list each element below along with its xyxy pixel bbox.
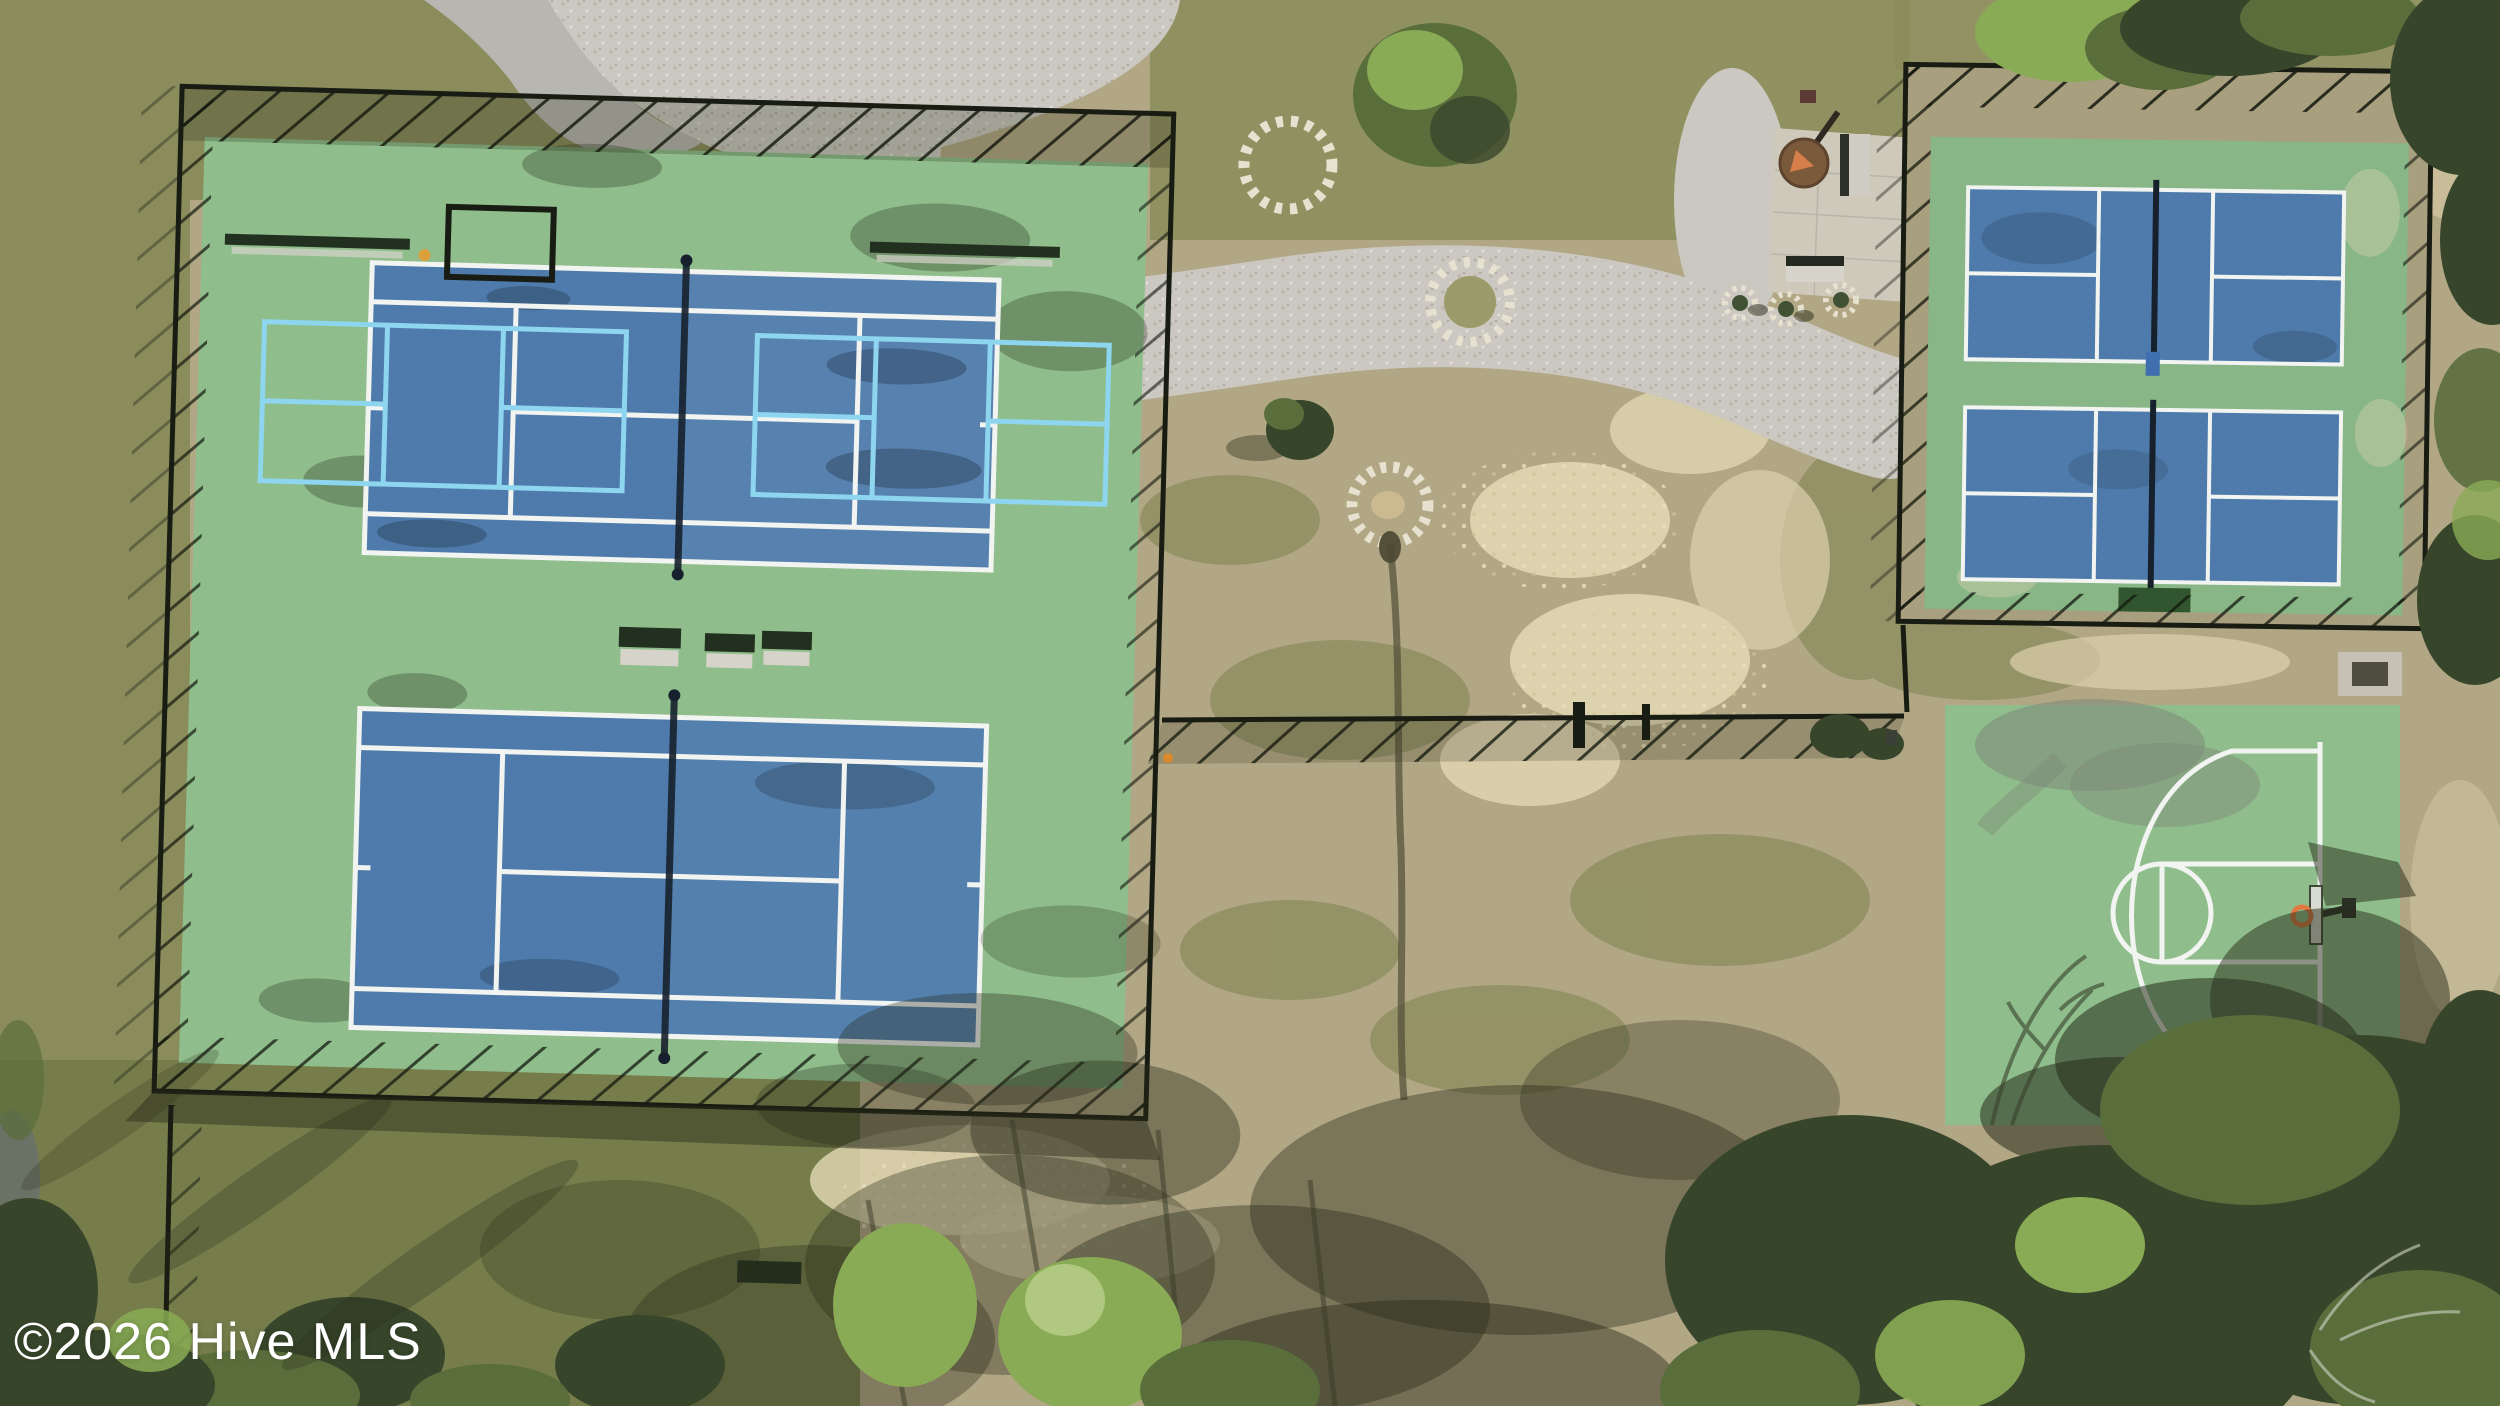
- aerial-photo-canvas: [0, 0, 2500, 1406]
- pickleball-net-1: [2154, 180, 2157, 372]
- trash-can: [1886, 730, 1897, 745]
- grill: [1800, 90, 1816, 103]
- pickleball-court-1: [1966, 177, 2345, 378]
- net-cart: [2146, 352, 2160, 376]
- pickleball-net-2: [2151, 400, 2154, 592]
- pickleball-complex: [1870, 64, 2432, 629]
- mls-watermark: ©2026 Hive MLS: [14, 1312, 422, 1372]
- concrete-pad: [2338, 652, 2402, 696]
- pickleball-court-2: [1963, 397, 2342, 594]
- bush: [1353, 23, 1517, 167]
- aerial-photo: ©2026 Hive MLS: [0, 0, 2500, 1406]
- gate-post: [1573, 702, 1585, 748]
- tennis-complex: [109, 85, 1269, 1296]
- tennis-court-upper: [258, 243, 1112, 592]
